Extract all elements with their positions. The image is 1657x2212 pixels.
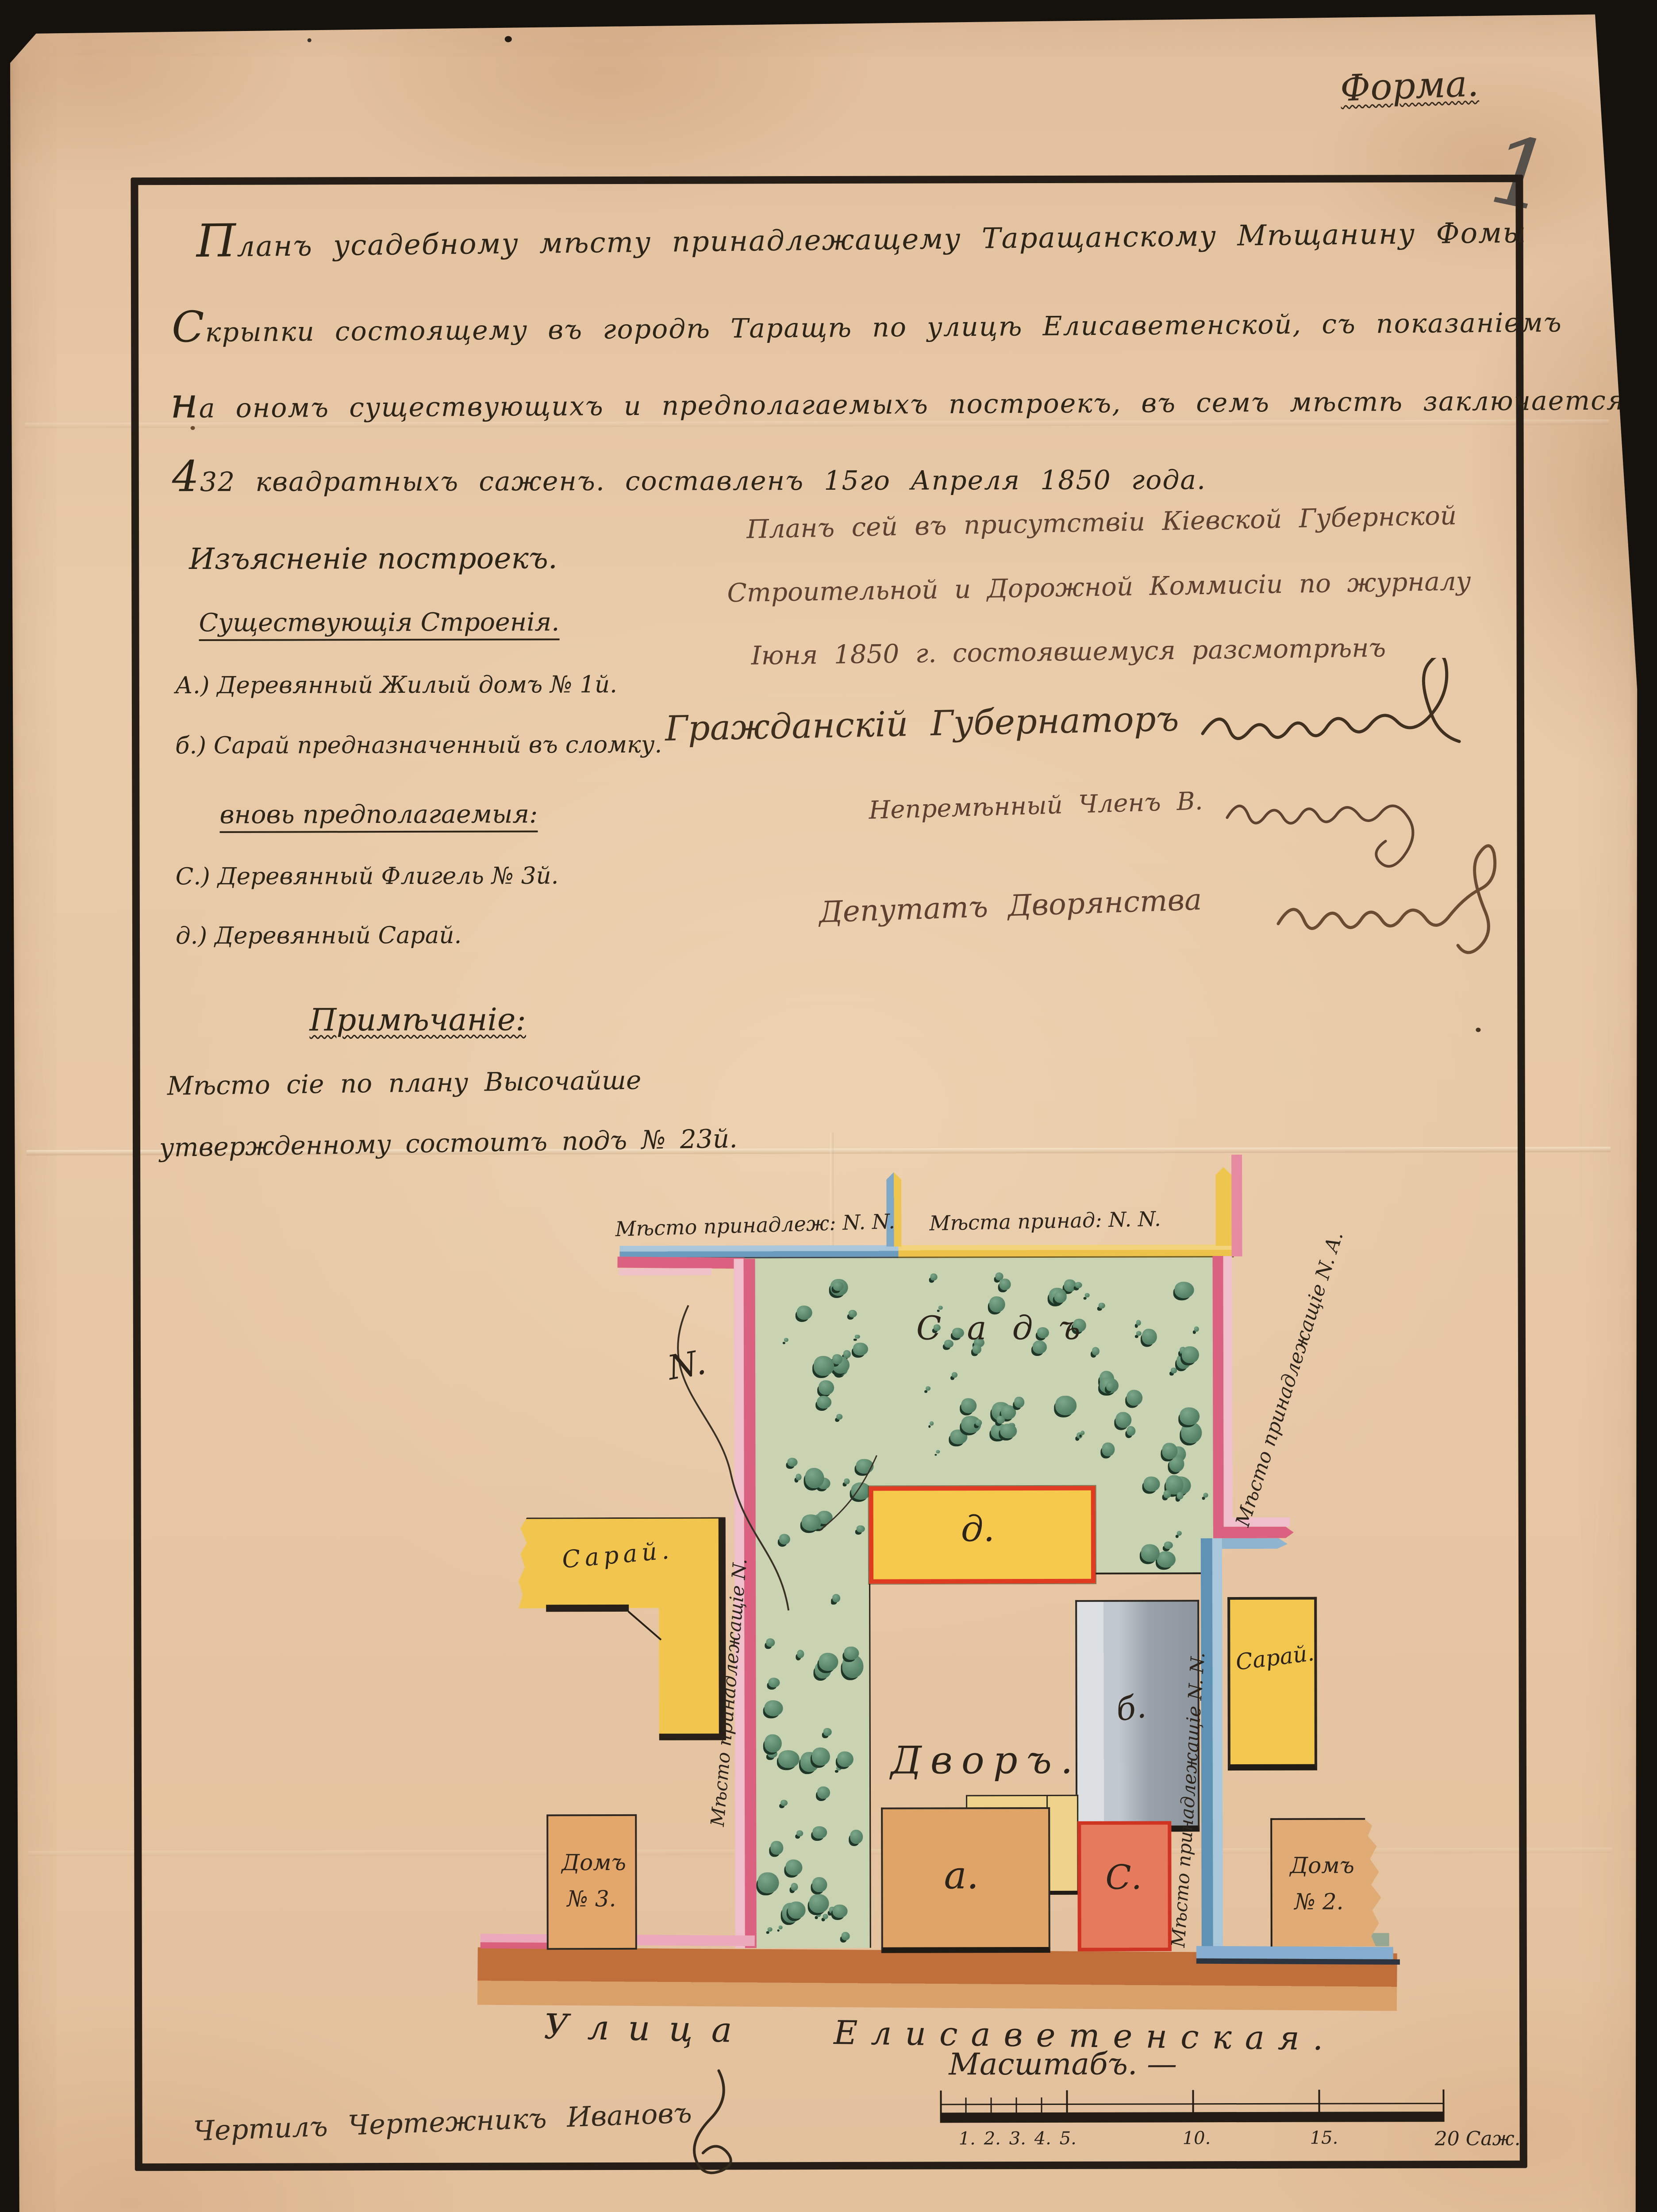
- legend-item-a: А.) Деревянный Жилый домъ № 1й.: [175, 671, 617, 699]
- scale-tick-minor: [991, 2097, 992, 2113]
- street-blue-dark-line: [1196, 1959, 1400, 1965]
- scale-tick-major: [1318, 2090, 1320, 2113]
- punch-dot: [1620, 263, 1627, 270]
- punch-dot: [1616, 196, 1623, 203]
- scale-num-5: 5.: [1060, 2128, 1076, 2149]
- legend-item-d: д.) Деревянный Сарай.: [176, 922, 461, 949]
- scale-tick-minor: [1016, 2097, 1017, 2113]
- boundary-top-yellow: [898, 1244, 1234, 1258]
- scale-num-2: 2.: [984, 2128, 1001, 2149]
- paper-speck: [505, 36, 512, 42]
- punch-dot: [1621, 296, 1628, 303]
- legend-key-d: д.): [176, 922, 207, 949]
- boundary-right-blue-light: [1212, 1538, 1223, 1947]
- building-b-label: б.: [1114, 1687, 1148, 1728]
- house3-label-1: Домъ: [561, 1850, 626, 1875]
- punch-dot: [1622, 330, 1629, 337]
- scale-tick-minor: [965, 2097, 967, 2113]
- garden-label: Садъ: [916, 1309, 1106, 1348]
- yard-label: Дворъ.: [891, 1738, 1082, 1783]
- note-heading: Примѣчаніе:: [309, 1001, 526, 1038]
- note-line-1: Мѣсто сіе по плану Высочайше: [167, 1065, 641, 1101]
- house2-top-line: [1270, 1818, 1365, 1820]
- boundary-right-pink-light: [1223, 1256, 1233, 1528]
- scale-tick-major: [1442, 2089, 1444, 2112]
- boundary-pink-top-right: [1231, 1155, 1242, 1256]
- building-a-label: а.: [944, 1853, 979, 1897]
- scale-tick-major: [1066, 2090, 1068, 2113]
- legend-proposed-heading: вновь предполагаемыя:: [219, 799, 538, 833]
- scale-num-1: 1.: [959, 2128, 976, 2149]
- legend-text-c: Деревянный Флигель № 3й.: [218, 862, 559, 890]
- scale-label: Масштабъ. —: [949, 2047, 1177, 2082]
- title-line-3: на ономъ существующихъ и предполагаемыхъ…: [170, 370, 1625, 427]
- title-line-4: 432 квадратныхъ саженъ. составленъ 15го …: [172, 449, 1207, 501]
- scale-tick-major: [1192, 2090, 1194, 2113]
- house3-label-2: № 3.: [567, 1886, 616, 1912]
- house2-left-line: [1270, 1818, 1273, 1947]
- deputy-signature-flourish: [1269, 839, 1553, 972]
- scale-end-label: 20 Саж.: [1435, 2128, 1521, 2150]
- scale-num-10: 10.: [1183, 2128, 1211, 2148]
- street-name-word1: Улица: [543, 2007, 751, 2051]
- legend-existing-heading: Существующія Строенія.: [199, 607, 559, 641]
- punch-dot: [1624, 397, 1631, 404]
- shed-left-bottom-edge: [546, 1605, 629, 1612]
- punch-dot: [1623, 364, 1630, 371]
- boundary-right-pink: [1213, 1256, 1224, 1528]
- building-c-label: С.: [1105, 1858, 1142, 1897]
- punch-dot: [1619, 229, 1626, 236]
- building-d-label: д.: [961, 1508, 995, 1549]
- scale-bar-body: [940, 2112, 1445, 2123]
- title-line-2: Скрыпки состоящему въ городѣ Таращѣ по у…: [172, 292, 1562, 352]
- street-blue-right: [1196, 1946, 1393, 1959]
- legend-item-c: С.) Деревянный Флигель № 3й.: [176, 862, 559, 890]
- legend-key-c: С.): [176, 863, 210, 890]
- building-house2: [1270, 1818, 1381, 1947]
- form-label: Форма.: [1339, 62, 1479, 110]
- scale-bar: 1. 2. 3. 4. 5. 10. 15. 20 Саж.: [940, 2089, 1537, 2157]
- scale-num-3: 3.: [1009, 2128, 1026, 2149]
- legend-text-b: Сарай предназначенный въ сломку.: [214, 731, 662, 759]
- boundary-blue-foot: [1213, 1538, 1288, 1549]
- legend-text-a: Деревянный Жилый домъ № 1й.: [217, 671, 617, 699]
- scale-num-4: 4.: [1034, 2128, 1051, 2149]
- legend-text-d: Деревянный Сарай.: [215, 922, 461, 949]
- boundary-pink-spur: [1213, 1527, 1294, 1538]
- n-mark: N.: [665, 1342, 709, 1388]
- building-house3: [546, 1814, 637, 1950]
- legend-item-b: б.) Сарай предназначенный въ сломку.: [175, 731, 662, 759]
- scale-num-15: 15.: [1310, 2128, 1338, 2148]
- garden-strip: [756, 1575, 871, 1948]
- draftsman-flourish: [630, 2062, 746, 2195]
- boundary-spike-right: [1215, 1167, 1231, 1246]
- paper-sheet: Форма. 1 Планъ усадебному мѣсту принадле…: [10, 10, 1642, 2212]
- building-shed-right: [1227, 1597, 1317, 1770]
- paper-speck: [308, 38, 311, 42]
- legend-key-b: б.): [175, 732, 206, 759]
- scale-tick-major: [940, 2090, 942, 2113]
- house2-label-2: № 2.: [1295, 1889, 1344, 1915]
- legend-heading: Изъясненіе построекъ.: [189, 541, 557, 576]
- scale-tick-minor: [1041, 2097, 1042, 2113]
- scanned-archival-plan: { "page": { "form_label": "Форма.", "pag…: [0, 0, 1657, 2212]
- neighbor-label-top-right: Мѣста принад: N. N.: [929, 1207, 1161, 1235]
- legend-key-a: А.): [175, 672, 210, 699]
- building-a-annex-right: [1046, 1795, 1078, 1895]
- governor-signature-flourish: [1194, 658, 1504, 773]
- house2-label-1: Домъ: [1290, 1853, 1354, 1878]
